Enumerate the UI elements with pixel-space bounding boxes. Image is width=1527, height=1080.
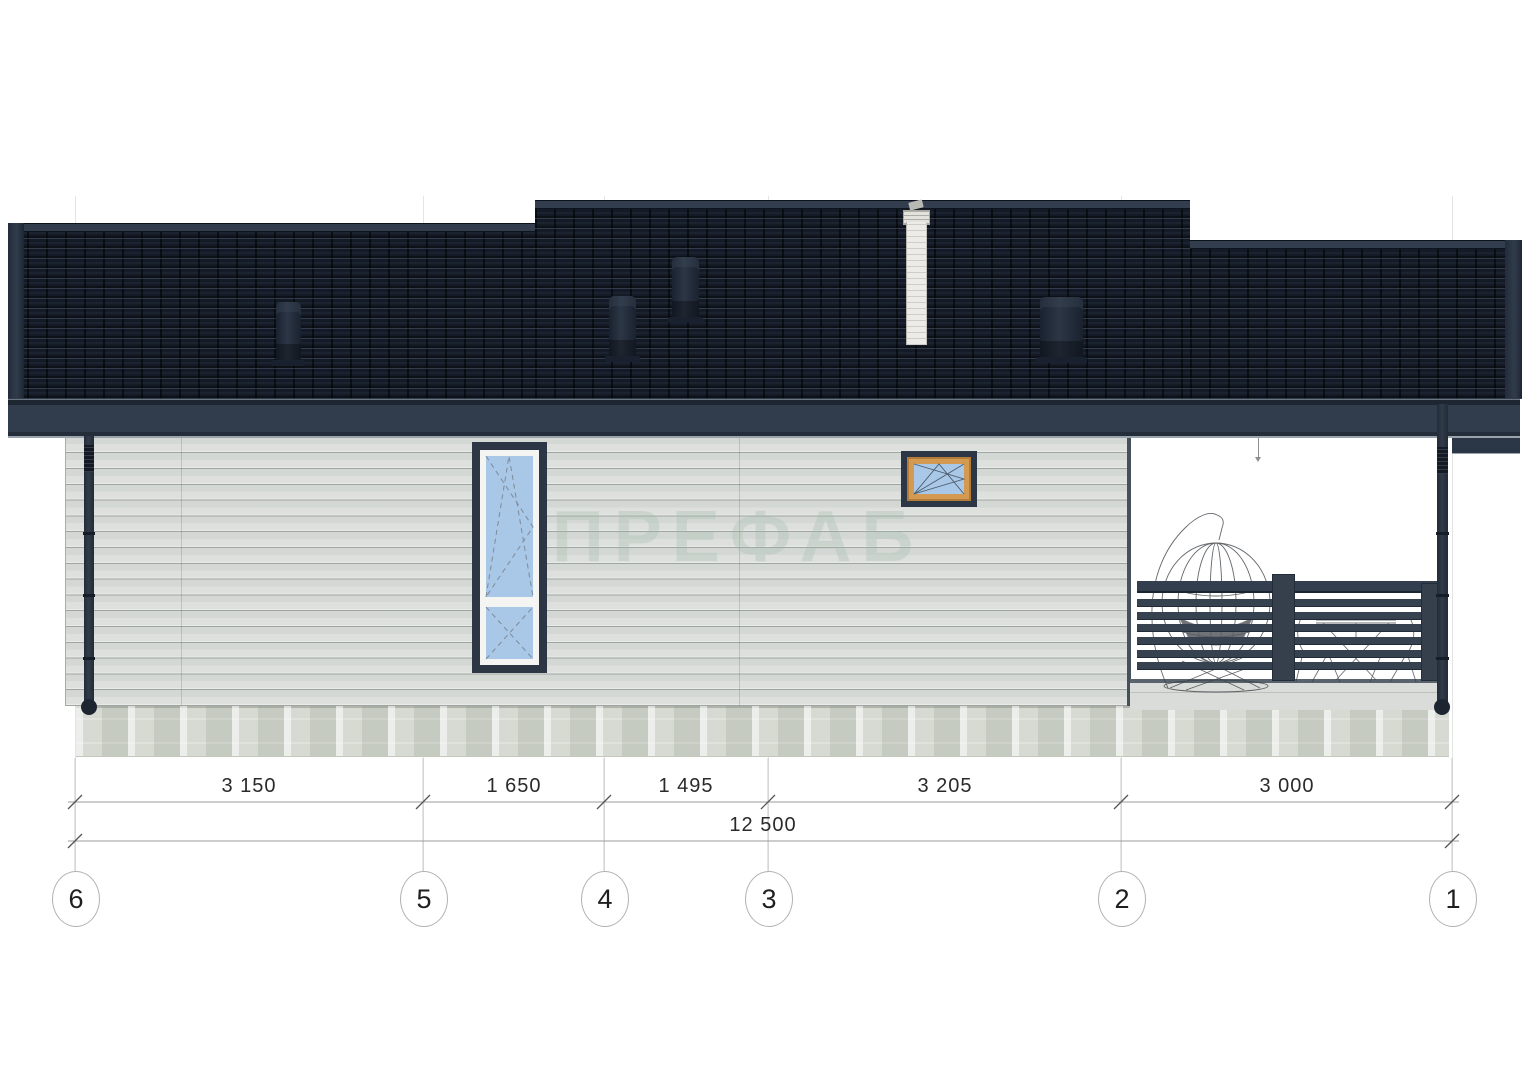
axis-circle-2: 2 — [1098, 871, 1146, 927]
dim-label-segment-4: 3 205 — [917, 775, 972, 798]
dim-label-total: 12 500 — [729, 814, 796, 837]
dim-label-segment-1: 3 150 — [221, 775, 276, 798]
axis-circle-1: 1 — [1429, 871, 1477, 927]
dim-label-segment-5: 3 000 — [1259, 775, 1314, 798]
elevation-drawing: ПРЕФАБ 3 150 1 650 1 495 3 205 3 000 12 … — [0, 0, 1527, 1080]
axis-circle-3: 3 — [745, 871, 793, 927]
dim-label-segment-2: 1 650 — [486, 775, 541, 798]
axis-circle-6: 6 — [52, 871, 100, 927]
dim-label-segment-3: 1 495 — [658, 775, 713, 798]
axis-label: 3 — [761, 884, 776, 915]
axis-label: 6 — [68, 884, 83, 915]
axis-label: 2 — [1114, 884, 1129, 915]
axis-circle-5: 5 — [400, 871, 448, 927]
axis-label: 1 — [1445, 884, 1460, 915]
axis-circle-4: 4 — [581, 871, 629, 927]
axis-label: 4 — [597, 884, 612, 915]
axis-label: 5 — [416, 884, 431, 915]
